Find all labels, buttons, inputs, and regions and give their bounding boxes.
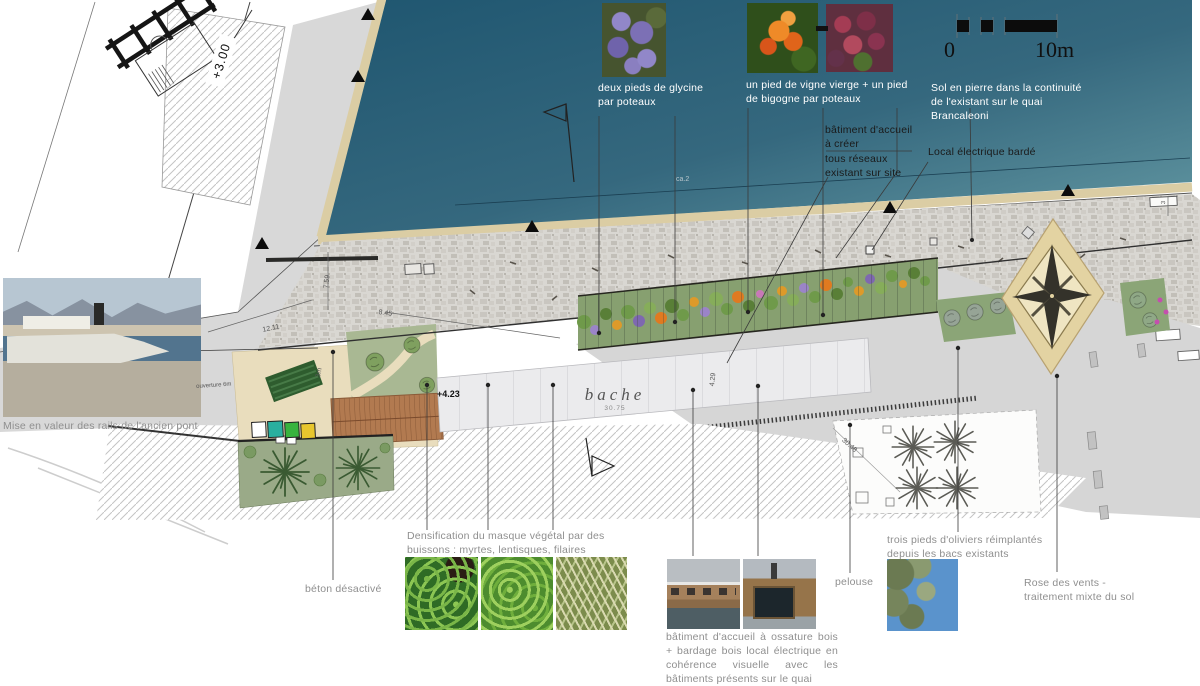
- photo-buisson-myrte: [405, 557, 478, 630]
- photo-buisson-lentisque: [481, 557, 553, 630]
- photo-port: [3, 278, 201, 417]
- label-vigne: un pied de vigne vierge + un pied de big…: [746, 79, 910, 107]
- label-glycine: deux pieds de glycine par poteaux: [598, 82, 706, 110]
- label-reseaux: tous réseaux existant sur site: [825, 153, 919, 181]
- dim-ca2: ca.2: [676, 176, 689, 183]
- photo-olivier: [887, 559, 958, 631]
- garden-area: [346, 324, 438, 400]
- site-plan-page: deux pieds de glycine par poteaux un pie…: [0, 0, 1200, 686]
- scale-zero: 0: [944, 37, 955, 63]
- dim-429: 4.29: [709, 372, 717, 386]
- photo-port-ship-superstructure: [23, 316, 90, 330]
- photo-glycine: [602, 3, 666, 77]
- photo-batiment-bois-1: [667, 559, 740, 629]
- photo-connector: [816, 26, 828, 31]
- label-oliviers: trois pieds d'oliviers réimplantés depui…: [887, 534, 1045, 562]
- photo-batiment-chimney: [771, 563, 778, 578]
- photo-batiment-railing: [667, 582, 740, 585]
- label-beton: béton désactivé: [305, 583, 382, 597]
- photo-batiment-windows: [671, 588, 735, 594]
- pelouse-parcel: [833, 410, 1041, 514]
- bache-dim-label: 30.75: [559, 405, 671, 412]
- label-sol-pierre: Sol en pierre dans la continuité de l'ex…: [931, 82, 1089, 124]
- dim-3: 3: [1161, 201, 1167, 205]
- scale-ten: 10m: [1035, 37, 1074, 63]
- label-mise-en-valeur: Mise en valeur des rails de l'ancien pon…: [3, 420, 200, 434]
- level-plus-423: +4.23: [437, 389, 460, 399]
- label-densification: Densification du masque végétal par des …: [407, 530, 649, 558]
- photo-vigne-vierge: [826, 4, 893, 72]
- label-batiment-ossature: bâtiment d'accueil à ossature bois + bar…: [666, 631, 838, 686]
- label-local-electrique: Local électrique bardé: [928, 146, 1036, 160]
- photo-batiment-bois-2: [743, 559, 816, 629]
- label-rose-des-vents: Rose des vents - traitement mixte du sol: [1024, 577, 1152, 605]
- photo-port-quay: [3, 361, 201, 417]
- photo-bignone: [747, 3, 818, 73]
- bache-label: bache: [559, 385, 671, 405]
- label-pelouse: pelouse: [835, 576, 873, 590]
- photo-port-funnel: [94, 303, 104, 325]
- photo-batiment-glass: [753, 586, 795, 619]
- label-batiment-creer: bâtiment d'accueil à créer: [825, 124, 919, 152]
- photo-buisson-filaire: [556, 557, 627, 630]
